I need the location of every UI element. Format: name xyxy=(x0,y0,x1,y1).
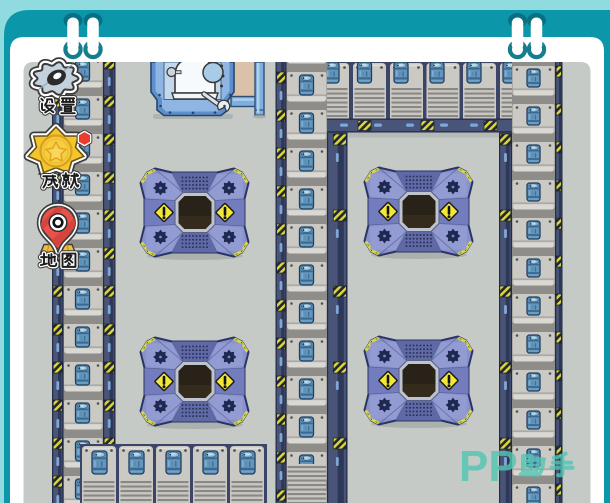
svg-text:PP: PP xyxy=(459,442,518,491)
